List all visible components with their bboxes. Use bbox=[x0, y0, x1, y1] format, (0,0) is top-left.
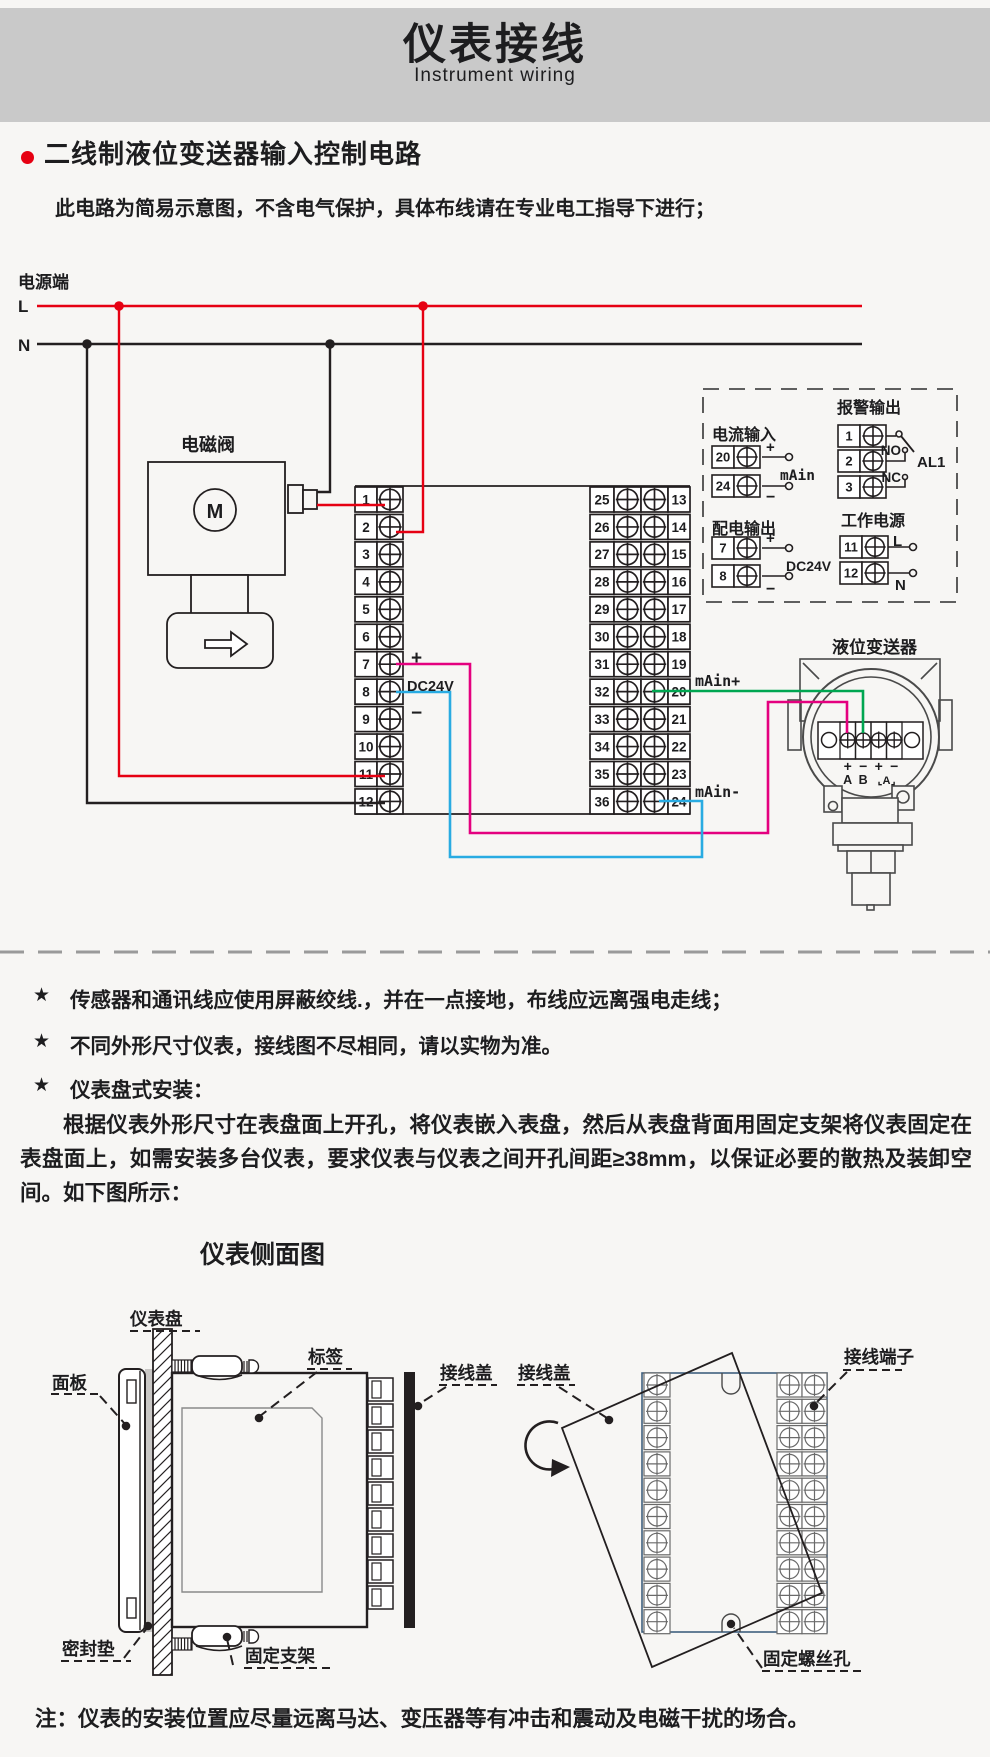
terminal-label: 接线端子 bbox=[844, 1347, 914, 1367]
rear-connector-rows bbox=[368, 1378, 393, 1609]
do-minus: − bbox=[766, 581, 775, 598]
terminal-number: 24 bbox=[716, 479, 731, 494]
terminal-number: 2 bbox=[845, 454, 852, 469]
terminal-number: 15 bbox=[671, 547, 687, 562]
do-plus: + bbox=[766, 530, 775, 547]
terminal-number: 23 bbox=[671, 767, 687, 782]
terminal-number: 4 bbox=[362, 575, 370, 590]
screw-hole-dot bbox=[727, 1620, 735, 1628]
bracket-label: 固定支架 bbox=[245, 1646, 315, 1666]
terminal-number: 17 bbox=[671, 602, 686, 617]
terminal-number: 11 bbox=[359, 767, 374, 782]
terminal-number: 22 bbox=[671, 739, 686, 754]
terminal-number: 5 bbox=[362, 602, 370, 617]
star-icon: ★ bbox=[33, 1030, 50, 1060]
terminal-number: 33 bbox=[594, 712, 610, 727]
star-icon: ★ bbox=[33, 1074, 50, 1104]
terminal-number: 6 bbox=[362, 630, 370, 645]
side-view bbox=[119, 1321, 415, 1692]
transmitter-title: 液位变送器 bbox=[832, 637, 918, 657]
dc24v-label: DC24V bbox=[407, 679, 454, 695]
terminal-number: 26 bbox=[594, 520, 610, 535]
terminal-number: 8 bbox=[719, 569, 726, 584]
terminal-number: 35 bbox=[594, 767, 610, 782]
terminal-number: 1 bbox=[845, 429, 852, 444]
ci-minus: − bbox=[766, 489, 775, 506]
power-side-label: 电源端 bbox=[18, 272, 69, 292]
front-bezel bbox=[119, 1369, 145, 1632]
front-panel-label: 面板 bbox=[52, 1373, 87, 1393]
note-row: ★ 仪表盘式安装： bbox=[33, 1073, 214, 1103]
terminal-number: 25 bbox=[594, 492, 610, 507]
screw-hole-label: 固定螺丝孔 bbox=[763, 1649, 851, 1669]
rear-view bbox=[525, 1353, 827, 1667]
gasket-label: 密封垫 bbox=[62, 1639, 115, 1659]
transmitter-polarity-label: − bbox=[890, 758, 898, 774]
terminal-number: 3 bbox=[362, 547, 370, 562]
terminal-number: 2 bbox=[362, 520, 370, 535]
transmitter-polarity-label: − bbox=[859, 758, 867, 774]
footer-note: 注：仪表的安装位置应尽量远离马达、变压器等有冲击和震动及电磁干扰的场合。 bbox=[35, 1702, 809, 1733]
note-text: 传感器和通讯线应使用屏蔽绞线.，并在一点接地，布线应远离强电走线； bbox=[70, 983, 732, 1013]
t7-plus: + bbox=[411, 648, 422, 669]
ci-plus: + bbox=[766, 439, 775, 456]
line-n-label: N bbox=[18, 336, 30, 355]
gasket bbox=[145, 1369, 153, 1632]
working-power-title: 工作电源 bbox=[841, 511, 905, 530]
note-text: 仪表盘式安装： bbox=[70, 1073, 214, 1103]
main-plus-label: mAin+ bbox=[695, 672, 740, 690]
cover-label-rear: 接线盖 bbox=[518, 1363, 571, 1383]
panel-label: 仪表盘 bbox=[129, 1309, 183, 1329]
terminal-number: 21 bbox=[671, 712, 687, 727]
motor-letter: M bbox=[207, 501, 224, 523]
terminal-number: 30 bbox=[594, 630, 609, 645]
side-view-title: 仪表侧面图 bbox=[199, 1240, 325, 1269]
install-paragraph: 根据仪表外形尺寸在表盘面上开孔，将仪表嵌入表盘，然后从表盘背面用固定支架将仪表固… bbox=[20, 1108, 972, 1210]
solenoid-valve bbox=[148, 462, 317, 668]
ci-signal: mAin bbox=[780, 468, 815, 484]
star-icon: ★ bbox=[33, 984, 50, 1014]
terminal-cover-bar bbox=[404, 1372, 415, 1628]
terminal-number: 12 bbox=[844, 566, 858, 581]
main-minus-label: mAin- bbox=[695, 783, 740, 801]
no-label: NO bbox=[881, 443, 901, 458]
transmitter-polarity-label: + bbox=[844, 758, 852, 774]
terminal-number: 19 bbox=[671, 657, 686, 672]
instrument-body bbox=[172, 1373, 367, 1627]
transmitter-polarity-label: + bbox=[875, 758, 883, 774]
terminal-number: 7 bbox=[719, 541, 726, 556]
note-text: 不同外形尺寸仪表，接线图不尽相同，请以实物为准。 bbox=[70, 1029, 562, 1059]
terminal-number: 31 bbox=[594, 657, 610, 672]
wp-n: N bbox=[895, 577, 906, 594]
line-l-label: L bbox=[18, 297, 28, 316]
terminal-number: 34 bbox=[594, 739, 610, 754]
terminal-number: 18 bbox=[671, 630, 687, 645]
terminal-number: 32 bbox=[594, 684, 609, 699]
terminal-strip-left: 123456789101112 bbox=[355, 487, 403, 814]
power-rails bbox=[37, 301, 862, 349]
wp-l: L bbox=[893, 533, 902, 550]
terminal-strip-right: 2513261427152816291730183119322033213422… bbox=[590, 487, 690, 814]
terminal-number: 16 bbox=[671, 575, 687, 590]
bracket-top bbox=[192, 1356, 242, 1376]
terminal-number: 29 bbox=[594, 602, 609, 617]
note-row: ★ 不同外形尺寸仪表，接线图不尽相同，请以实物为准。 bbox=[33, 1029, 562, 1059]
terminal-number: 36 bbox=[594, 794, 610, 809]
cover-label-left: 接线盖 bbox=[440, 1363, 493, 1383]
terminal-number: 27 bbox=[594, 547, 609, 562]
terminal-number: 9 bbox=[362, 712, 370, 727]
solenoid-valve-label: 电磁阀 bbox=[181, 434, 235, 455]
do-voltage: DC24V bbox=[786, 558, 832, 574]
wiring-diagram: 123456789101112 251326142715281629173018… bbox=[0, 0, 990, 1757]
terminal-number: 20 bbox=[716, 450, 730, 465]
bracket-bottom bbox=[192, 1626, 242, 1646]
nc-label: NC bbox=[882, 470, 902, 485]
terminal-number: 14 bbox=[671, 520, 687, 535]
terminal-number: 7 bbox=[362, 657, 370, 672]
t8-minus: − bbox=[411, 703, 422, 724]
transmitter-port-label: A bbox=[843, 773, 852, 787]
alarm-output-title: 报警输出 bbox=[837, 398, 901, 417]
terminal-number: 11 bbox=[844, 540, 858, 555]
page: 仪表接线 Instrument wiring 二线制液位变送器输入控制电路 此电… bbox=[0, 0, 990, 1757]
terminal-number: 28 bbox=[594, 575, 610, 590]
transmitter-comm-label: ⌞A⌟ bbox=[877, 775, 895, 787]
al1-label: AL1 bbox=[917, 454, 945, 471]
terminal-number: 8 bbox=[362, 684, 370, 699]
terminal-number: 13 bbox=[671, 492, 687, 507]
tag-label: 标签 bbox=[307, 1347, 343, 1367]
level-transmitter bbox=[788, 659, 952, 910]
note-row: ★ 传感器和通讯线应使用屏蔽绞线.，并在一点接地，布线应远离强电走线； bbox=[33, 983, 732, 1013]
terminal-number: 10 bbox=[358, 739, 373, 754]
transmitter-port-label: B bbox=[859, 773, 868, 787]
terminal-number: 3 bbox=[845, 480, 852, 495]
terminal-number: 12 bbox=[358, 794, 373, 809]
